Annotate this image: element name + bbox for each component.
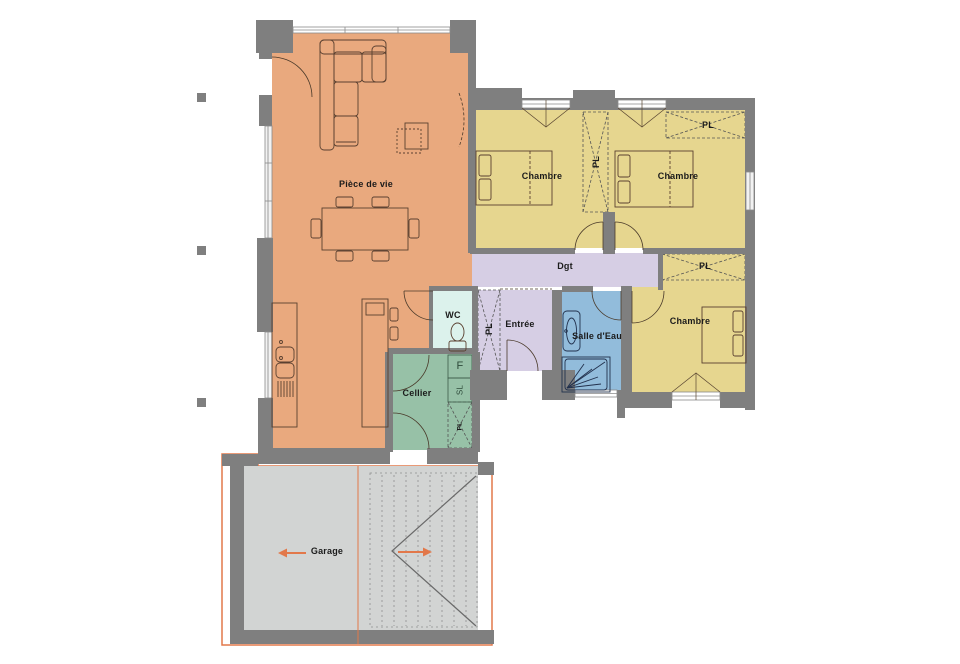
label-bedroom1: Chambre bbox=[522, 171, 562, 181]
terrace-post bbox=[197, 398, 206, 407]
room-garage-floor bbox=[244, 466, 478, 630]
garage-structure bbox=[222, 454, 494, 645]
label-closet-bedroom3: PL bbox=[699, 261, 711, 271]
label-living: Pièce de vie bbox=[339, 179, 393, 189]
label-closet-between-bedrooms: PL bbox=[591, 156, 601, 168]
window-living-left-lower bbox=[265, 332, 272, 398]
label-washer: SL bbox=[456, 385, 465, 395]
label-bedroom2: Chambre bbox=[658, 171, 698, 181]
floor-plan-canvas: Pièce de vie Chambre Chambre Chambre Dgt… bbox=[0, 0, 960, 664]
label-closet-bedroom2: PL bbox=[702, 120, 714, 130]
label-pantry: Cellier bbox=[403, 388, 432, 398]
label-fridge: F bbox=[457, 360, 464, 372]
label-closet-pantry: PL bbox=[457, 422, 464, 431]
terrace-post bbox=[197, 93, 206, 102]
terrace-post bbox=[197, 246, 206, 255]
label-garage: Garage bbox=[311, 546, 343, 556]
window-living-top bbox=[293, 27, 450, 33]
label-bathroom: Salle d'Eau bbox=[572, 331, 622, 341]
window-bathroom bbox=[575, 390, 617, 397]
label-hallway: Dgt bbox=[557, 261, 573, 271]
window-bedroom2-right bbox=[746, 172, 754, 210]
label-wc: WC bbox=[445, 310, 460, 320]
window-living-left-upper bbox=[265, 126, 272, 238]
label-entry: Entrée bbox=[505, 319, 534, 329]
label-bedroom3: Chambre bbox=[670, 316, 710, 326]
floor-plan-drawing bbox=[0, 0, 960, 664]
label-closet-entry: PL bbox=[484, 323, 494, 335]
